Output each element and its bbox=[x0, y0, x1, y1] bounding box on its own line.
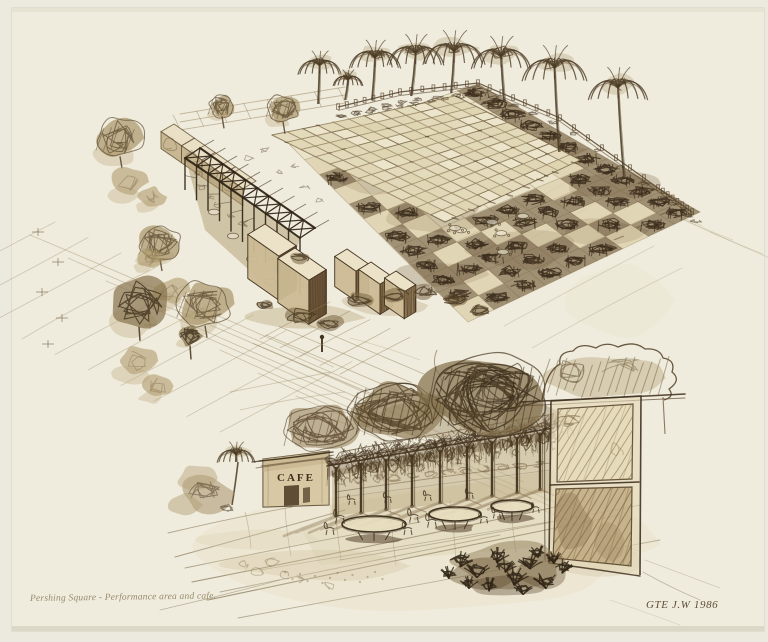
svg-text:GTE J.W 1986: GTE J.W 1986 bbox=[646, 599, 718, 611]
svg-text:CAFE: CAFE bbox=[277, 472, 315, 484]
